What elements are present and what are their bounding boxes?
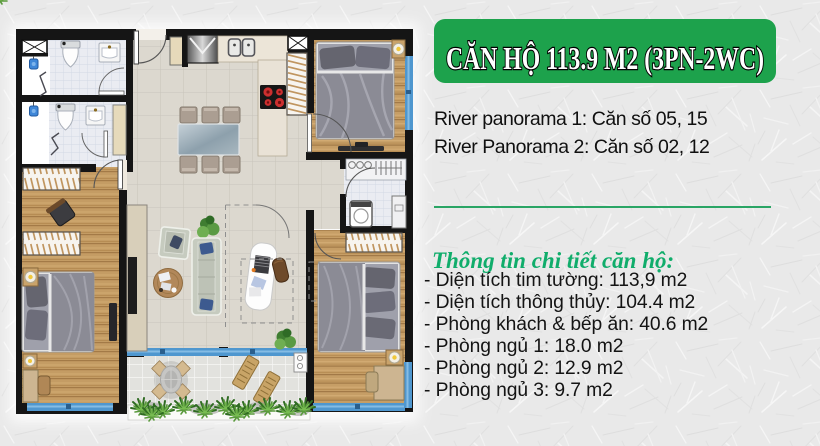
svg-text:CĂN HỘ 113.9 M2 (3PN-2WC): CĂN HỘ 113.9 M2 (3PN-2WC) bbox=[446, 40, 764, 76]
